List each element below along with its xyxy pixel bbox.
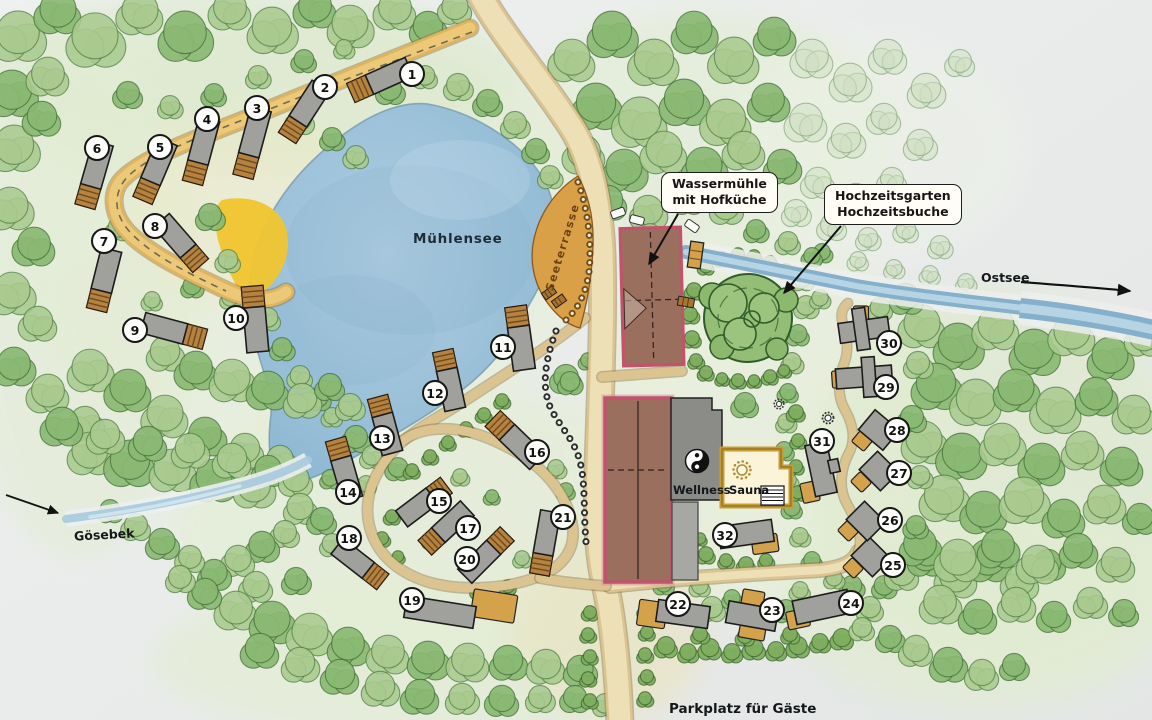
cabin-marker-1: 1 bbox=[399, 61, 425, 87]
label-wellness: Wellness bbox=[673, 483, 731, 497]
cabin-marker-number: 2 bbox=[321, 80, 330, 95]
cabin-marker-29: 29 bbox=[873, 374, 899, 400]
cabin-marker-27: 27 bbox=[886, 460, 912, 486]
cabin-marker-number: 5 bbox=[156, 140, 165, 155]
label-hochzeitsgarten: Hochzeitsgarten Hochzeitsbuche bbox=[824, 184, 962, 225]
cabin-marker-14: 14 bbox=[335, 479, 361, 505]
cabin-marker-28: 28 bbox=[884, 417, 910, 443]
label-hochzeitsgarten-line2: Hochzeitsbuche bbox=[835, 204, 951, 220]
cabin-marker-number: 9 bbox=[131, 323, 140, 338]
cabin-marker-9: 9 bbox=[122, 317, 148, 343]
resort-site-map: Wassermühle mit Hofküche Hochzeitsgarten… bbox=[0, 0, 1152, 720]
label-muehlensee: Mühlensee bbox=[413, 231, 503, 247]
cabin-marker-3: 3 bbox=[244, 95, 270, 121]
label-goesebek: Gösebek bbox=[74, 525, 135, 543]
label-sauna: Sauna bbox=[729, 483, 769, 497]
cabin-marker-18: 18 bbox=[336, 525, 362, 551]
cabin-marker-21: 21 bbox=[550, 504, 576, 530]
cabin-marker-number: 21 bbox=[554, 510, 571, 525]
cabin-marker-11: 11 bbox=[490, 334, 516, 360]
label-seeterrasse: Seeterrasse bbox=[543, 206, 581, 292]
cabin-marker-number: 3 bbox=[253, 101, 262, 116]
cabin-marker-13: 13 bbox=[369, 425, 395, 451]
cabin-marker-number: 8 bbox=[151, 219, 160, 234]
cabin-marker-number: 26 bbox=[881, 513, 898, 528]
cabin-marker-number: 15 bbox=[430, 494, 447, 509]
cabin-marker-19: 19 bbox=[399, 587, 425, 613]
cabin-marker-30: 30 bbox=[876, 330, 902, 356]
cabin-marker-number: 25 bbox=[884, 558, 901, 573]
cabin-marker-6: 6 bbox=[84, 135, 110, 161]
cabin-marker-number: 32 bbox=[716, 528, 733, 543]
cabin-marker-2: 2 bbox=[312, 74, 338, 100]
cabin-marker-number: 12 bbox=[426, 386, 443, 401]
cabin-marker-number: 23 bbox=[763, 603, 780, 618]
label-hochzeitsgarten-line1: Hochzeitsgarten bbox=[835, 188, 951, 204]
cabin-marker-number: 16 bbox=[528, 445, 545, 460]
label-wassermuehle-line1: Wassermühle bbox=[672, 176, 767, 192]
cabin-marker-number: 20 bbox=[458, 552, 475, 567]
label-ostsee: Ostsee bbox=[981, 270, 1029, 285]
cabin-marker-number: 7 bbox=[100, 234, 109, 249]
label-wassermuehle: Wassermühle mit Hofküche bbox=[661, 172, 778, 213]
cabin-marker-10: 10 bbox=[223, 305, 249, 331]
cabin-marker-12: 12 bbox=[422, 380, 448, 406]
cabin-marker-number: 18 bbox=[340, 531, 357, 546]
cabin-marker-26: 26 bbox=[877, 507, 903, 533]
label-parkplatz: Parkplatz für Gäste bbox=[669, 701, 816, 717]
cabin-marker-17: 17 bbox=[455, 515, 481, 541]
cabin-marker-number: 10 bbox=[227, 311, 244, 326]
cabin-marker-number: 14 bbox=[339, 485, 356, 500]
cabin-marker-15: 15 bbox=[426, 488, 452, 514]
cabin-marker-number: 19 bbox=[403, 593, 420, 608]
cabin-marker-number: 27 bbox=[890, 466, 907, 481]
cabin-marker-24: 24 bbox=[838, 590, 864, 616]
cabin-marker-number: 11 bbox=[494, 340, 511, 355]
cabin-marker-4: 4 bbox=[194, 106, 220, 132]
cabin-marker-number: 30 bbox=[880, 336, 897, 351]
cabin-marker-16: 16 bbox=[524, 439, 550, 465]
cabin-marker-32: 32 bbox=[712, 522, 738, 548]
cabin-marker-number: 1 bbox=[408, 67, 417, 82]
labels-overlay: Wassermühle mit Hofküche Hochzeitsgarten… bbox=[0, 0, 1152, 720]
cabin-marker-25: 25 bbox=[880, 552, 906, 578]
cabin-marker-number: 17 bbox=[459, 521, 476, 536]
cabin-marker-number: 29 bbox=[877, 380, 894, 395]
label-wassermuehle-line2: mit Hofküche bbox=[672, 192, 767, 208]
cabin-marker-number: 24 bbox=[842, 596, 859, 611]
cabin-marker-5: 5 bbox=[147, 134, 173, 160]
cabin-marker-number: 4 bbox=[203, 112, 212, 127]
cabin-marker-20: 20 bbox=[454, 546, 480, 572]
cabin-marker-31: 31 bbox=[809, 428, 835, 454]
cabin-marker-22: 22 bbox=[665, 591, 691, 617]
cabin-marker-number: 22 bbox=[669, 597, 686, 612]
cabin-marker-8: 8 bbox=[142, 213, 168, 239]
cabin-marker-number: 28 bbox=[888, 423, 905, 438]
cabin-marker-number: 13 bbox=[373, 431, 390, 446]
cabin-marker-23: 23 bbox=[759, 597, 785, 623]
cabin-marker-7: 7 bbox=[91, 228, 117, 254]
cabin-marker-number: 6 bbox=[93, 141, 102, 156]
cabin-marker-number: 31 bbox=[813, 434, 830, 449]
